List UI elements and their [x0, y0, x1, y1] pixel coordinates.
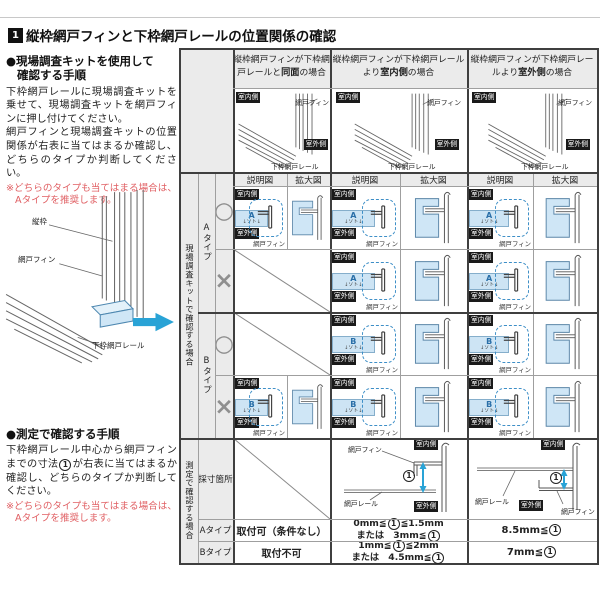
- explain-cell: 室内側 A↓ソト↓ 室外側 網戸フィン: [330, 249, 400, 312]
- result-a-flush: 取付可（条件なし）: [233, 519, 330, 541]
- diagonal-line: [233, 249, 330, 312]
- indoor-side-tag: 室内側: [469, 189, 493, 200]
- indoor-side-tag: 室内側: [336, 92, 360, 103]
- type-a-row-label: Aタイプ: [198, 519, 233, 541]
- kit-letter: B: [486, 338, 492, 345]
- kit-soto-mark: ↓ソト↓: [344, 282, 362, 288]
- measure-note-line1: ※どちらのタイプも当てはまる場合は、: [6, 501, 177, 512]
- outdoor-side-tag: 室外側: [469, 417, 493, 428]
- subheader-explain: 説明図: [330, 172, 400, 186]
- outdoor-side-tag: 室外側: [332, 228, 356, 239]
- measure-body: 下枠網戸レール中心から網戸フィンまでの寸法1が右表に当てはまるか確認し、どちらの…: [6, 444, 177, 498]
- indoor-side-tag: 室内側: [469, 315, 493, 326]
- mark-a-ok: ○: [215, 172, 233, 249]
- fin-label: 網戸フィン: [366, 302, 398, 311]
- enlarge-cell: [400, 375, 467, 438]
- kit-check-side-label: 現場調査キットで確認する場合: [181, 172, 198, 438]
- focus-dashed-box: [495, 388, 529, 426]
- rail-label: 下枠網戸レール: [92, 340, 145, 351]
- indoor-side-tag: 室内側: [414, 439, 438, 450]
- kit-soto-mark: ↓ソト↓: [344, 408, 362, 414]
- kit-procedure-heading: ●現場調査キットを使用して 確認する手順: [6, 54, 177, 83]
- enlarge-cell: [287, 375, 330, 438]
- manual-page: 1 縦枠網戸フィンと下枠網戸レールの位置関係の確認 ●現場調査キットを使用して …: [0, 0, 600, 600]
- rail-label: 網戸レール: [344, 498, 378, 508]
- enlarged-profile-icon: [537, 252, 592, 310]
- kit-heading-line2: 確認する手順: [6, 68, 177, 82]
- grid-line: [198, 312, 597, 314]
- dimension-1-label: 1: [402, 470, 416, 482]
- rail-label: 下枠網戸レール: [388, 161, 436, 171]
- explain-cell: 室内側 A↓ソト↓ 室外側 網戸フィン: [233, 186, 287, 249]
- enlarge-cell: [533, 249, 597, 312]
- kit-letter: A: [350, 212, 356, 219]
- indoor-side-tag: 室内側: [332, 189, 356, 200]
- enlarge-cell: [533, 375, 597, 438]
- enlarge-cell: [533, 186, 597, 249]
- rail-label: 網戸レール: [475, 496, 509, 506]
- kit-letter: A: [486, 212, 492, 219]
- outdoor-side-tag: 室外側: [332, 291, 356, 302]
- result-b-outdoor: 7mm≦1: [467, 541, 597, 563]
- fin-label: 網戸フィン: [499, 428, 531, 437]
- fin-label: 網戸フィン: [499, 365, 531, 374]
- focus-dashed-box: [362, 388, 396, 426]
- focus-dashed-box: [495, 262, 529, 300]
- enlarge-cell: [533, 312, 597, 375]
- top-divider: [0, 17, 600, 18]
- fin-label: 網戸フィン: [348, 444, 382, 454]
- not-applicable-cell: [233, 438, 330, 519]
- explain-cell: 室内側 B↓ソト↓ 室外側 網戸フィン: [330, 312, 400, 375]
- enlarged-profile-icon: [290, 189, 327, 247]
- type-b-label: Bタイプ: [198, 312, 215, 438]
- rail-label: 下枠網戸レール: [271, 161, 319, 171]
- position-check-table: 縦枠網戸フィンが下枠網戸レールと同面の場合 縦枠網戸フィンが下枠網戸レールより室…: [179, 48, 599, 565]
- rail-label: 下枠網戸レール: [521, 161, 569, 171]
- explain-cell: 室内側 B↓ソト↓ 室外側 網戸フィン: [233, 375, 287, 438]
- grid-line: [198, 519, 597, 520]
- focus-dashed-box: [249, 199, 283, 237]
- frame-corner-diagram: 縦枠 網戸フィン 下枠網戸レール: [4, 188, 176, 364]
- subheader-explain: 説明図: [233, 172, 287, 186]
- measure-note-line2: Aタイプを推奨します。: [6, 513, 177, 525]
- explain-cell: 室内側 B↓ソト↓ 室外側 網戸フィン: [467, 312, 533, 375]
- fin-label: 網戸フィン: [558, 97, 592, 107]
- grid-line: [287, 375, 288, 438]
- mark-b-ok: ○: [215, 312, 233, 375]
- grid-line: [198, 172, 199, 563]
- result-a-indoor: 0mm≦1≦1.5mm または 3mm≦1: [330, 519, 467, 541]
- outdoor-side-tag: 室外側: [566, 139, 590, 150]
- outdoor-side-tag: 室外側: [469, 291, 493, 302]
- grid-line: [198, 541, 597, 542]
- enlarged-profile-icon: [537, 378, 592, 436]
- enlarged-profile-icon: [537, 315, 592, 373]
- subheader-enlarge: 拡大図: [533, 172, 597, 186]
- kit-letter: A: [486, 275, 492, 282]
- kit-soto-mark: ↓ソト↓: [344, 345, 362, 351]
- diagonal-line: [233, 312, 330, 375]
- kit-body2: 網戸フィンと現場調査キットの位置関係が右表に当てはまるか確認し、どちらのタイプか…: [6, 126, 177, 180]
- indoor-side-tag: 室内側: [541, 439, 565, 450]
- subheader-enlarge: 拡大図: [400, 172, 467, 186]
- focus-dashed-box: [495, 325, 529, 363]
- tate-frame-label: 縦枠: [32, 216, 47, 227]
- grid-line: [215, 375, 597, 376]
- grid-line: [233, 50, 235, 563]
- diagonal-line: [233, 438, 330, 519]
- result-b-flush: 取付不可: [233, 541, 330, 563]
- indoor-side-tag: 室内側: [236, 92, 260, 103]
- explain-cell: 室内側 A↓ソト↓ 室外側 網戸フィン: [467, 249, 533, 312]
- grid-line: [233, 88, 597, 89]
- colhead-em: 室内側: [380, 67, 408, 78]
- result-line2: または 4.5mm≦1: [352, 552, 446, 564]
- focus-dashed-box: [249, 388, 283, 426]
- indoor-side-tag: 室内側: [472, 92, 496, 103]
- outdoor-side-tag: 室外側: [414, 501, 438, 512]
- measure-diagram-outdoor: 室内側 1 網戸レール 室外側 網戸フィン: [467, 438, 597, 519]
- type-a-label: Aタイプ: [198, 172, 215, 312]
- dimension-1-label: 1: [549, 472, 563, 484]
- enlarged-profile-icon: [405, 315, 463, 373]
- enlarged-profile-icon: [537, 189, 592, 247]
- explain-cell: 室内側 B↓ソト↓ 室外側 網戸フィン: [330, 375, 400, 438]
- enlarged-profile-icon: [290, 378, 327, 436]
- grid-line: [181, 172, 597, 174]
- column-header-outdoor: 縦枠網戸フィンが下枠網戸レールより室外側の場合: [467, 50, 597, 88]
- grid-line: [467, 50, 469, 563]
- fin-label: 網戸フィン: [499, 239, 531, 248]
- outdoor-side-tag: 室外側: [519, 500, 543, 511]
- grid-line: [215, 172, 216, 438]
- table-corner-cell: [181, 50, 233, 172]
- measure-note: ※どちらのタイプも当てはまる場合は、 Aタイプを推奨します。: [6, 501, 177, 526]
- fin-label: 網戸フィン: [499, 302, 531, 311]
- indoor-side-tag: 室内側: [332, 315, 356, 326]
- fin-label: 網戸フィン: [18, 254, 55, 265]
- indoor-side-tag: 室内側: [332, 378, 356, 389]
- focus-dashed-box: [495, 199, 529, 237]
- column-header-indoor: 縦枠網戸フィンが下枠網戸レールより室内側の場合: [330, 50, 467, 88]
- frame-corner-drawing: [4, 188, 176, 364]
- header-diagram-outdoor: 室内側 網戸フィン 室外側 下枠網戸レール: [467, 88, 597, 172]
- fin-label: 網戸フィン: [295, 97, 329, 107]
- result-b-indoor: 1mm≦1≦2mm または 4.5mm≦1: [330, 541, 467, 563]
- colhead-post: の場合: [408, 68, 434, 78]
- colhead-em: 室外側: [518, 67, 546, 78]
- outdoor-side-tag: 室外側: [469, 228, 493, 239]
- kit-letter: A: [350, 275, 356, 282]
- kit-soto-mark: ↓ソト↓: [344, 219, 362, 225]
- grid-line: [233, 186, 597, 187]
- header-diagram-flush: 室内側 網戸フィン 室外側 下枠網戸レール: [233, 88, 330, 172]
- fin-label: 網戸フィン: [366, 365, 398, 374]
- explain-cell: 室内側 B↓ソト↓ 室外側 網戸フィン: [467, 375, 533, 438]
- measure-check-side-label: 測定で確認する場合: [181, 438, 198, 563]
- grid-line: [400, 172, 401, 438]
- measure-diagram-indoor: 網戸フィン 室内側 1 網戸レール 室外側: [330, 438, 467, 519]
- grid-line: [330, 50, 332, 563]
- not-applicable-cell: [233, 249, 330, 312]
- subheader-enlarge: 拡大図: [287, 172, 330, 186]
- enlarged-profile-icon: [405, 252, 463, 310]
- explain-cell: 室内側 A↓ソト↓ 室外側 網戸フィン: [330, 186, 400, 249]
- kit-heading-line1: ●現場調査キットを使用して: [6, 54, 154, 68]
- outdoor-side-tag: 室外側: [332, 417, 356, 428]
- subheader-explain: 説明図: [467, 172, 533, 186]
- kit-procedure-section: ●現場調査キットを使用して 確認する手順 下枠網戸レールに現場調査キットを乗せて…: [6, 54, 177, 208]
- explain-cell: 室内側 A↓ソト↓ 室外側 網戸フィン: [467, 186, 533, 249]
- grid-line: [215, 249, 597, 250]
- grid-line: [287, 172, 288, 249]
- kit-letter: B: [486, 401, 492, 408]
- page-title-text: 縦枠網戸フィンと下枠網戸レールの位置関係の確認: [26, 25, 336, 45]
- enlarge-cell: [400, 186, 467, 249]
- measure-procedure-section: ●測定で確認する手順 下枠網戸レール中心から網戸フィンまでの寸法1が右表に当ては…: [6, 427, 177, 526]
- kit-letter: B: [350, 401, 356, 408]
- header-diagram-indoor: 室内側 網戸フィン 室外側 下枠網戸レール: [330, 88, 467, 172]
- grid-line: [533, 172, 534, 438]
- colhead-post: の場合: [546, 68, 572, 78]
- enlarge-cell: [400, 249, 467, 312]
- mark-a-ng: ×: [215, 249, 233, 312]
- not-applicable-cell: [233, 312, 330, 375]
- grid-line: [181, 438, 597, 440]
- outdoor-side-tag: 室外側: [469, 354, 493, 365]
- outdoor-side-tag: 室外側: [304, 139, 328, 150]
- fin-label: 網戸フィン: [561, 506, 595, 516]
- colhead-em: 同面: [281, 67, 299, 78]
- enlarged-profile-icon: [405, 189, 463, 247]
- enlarge-cell: [287, 186, 330, 249]
- kit-body1: 下枠網戸レールに現場調査キットを乗せて、現場調査キットを網戸フィンに押し付けてく…: [6, 86, 177, 127]
- colhead-post: の場合: [299, 68, 325, 78]
- measure-row-label: 採寸箇所: [198, 438, 233, 519]
- fin-label: 網戸フィン: [253, 428, 285, 437]
- fin-label: 網戸フィン: [366, 428, 398, 437]
- kit-letter: B: [350, 338, 356, 345]
- indoor-side-tag: 室内側: [469, 252, 493, 263]
- fin-label: 網戸フィン: [253, 239, 285, 248]
- enlarged-profile-icon: [405, 378, 463, 436]
- outdoor-side-tag: 室外側: [435, 139, 459, 150]
- result-a-outdoor: 8.5mm≦1: [467, 519, 597, 541]
- enlarge-cell: [400, 312, 467, 375]
- outdoor-side-tag: 室外側: [332, 354, 356, 365]
- fin-label: 網戸フィン: [366, 239, 398, 248]
- indoor-side-tag: 室内側: [469, 378, 493, 389]
- indoor-side-tag: 室内側: [332, 252, 356, 263]
- fin-label: 網戸フィン: [427, 97, 461, 107]
- section-number-badge: 1: [8, 28, 23, 43]
- column-header-flush: 縦枠網戸フィンが下枠網戸レールと同面の場合: [233, 50, 330, 88]
- focus-dashed-box: [362, 262, 396, 300]
- measure-heading: ●測定で確認する手順: [6, 427, 177, 441]
- focus-dashed-box: [362, 325, 396, 363]
- type-b-row-label: Bタイプ: [198, 541, 233, 563]
- page-title: 1 縦枠網戸フィンと下枠網戸レールの位置関係の確認: [8, 25, 336, 45]
- mark-b-ng: ×: [215, 375, 233, 438]
- focus-dashed-box: [362, 199, 396, 237]
